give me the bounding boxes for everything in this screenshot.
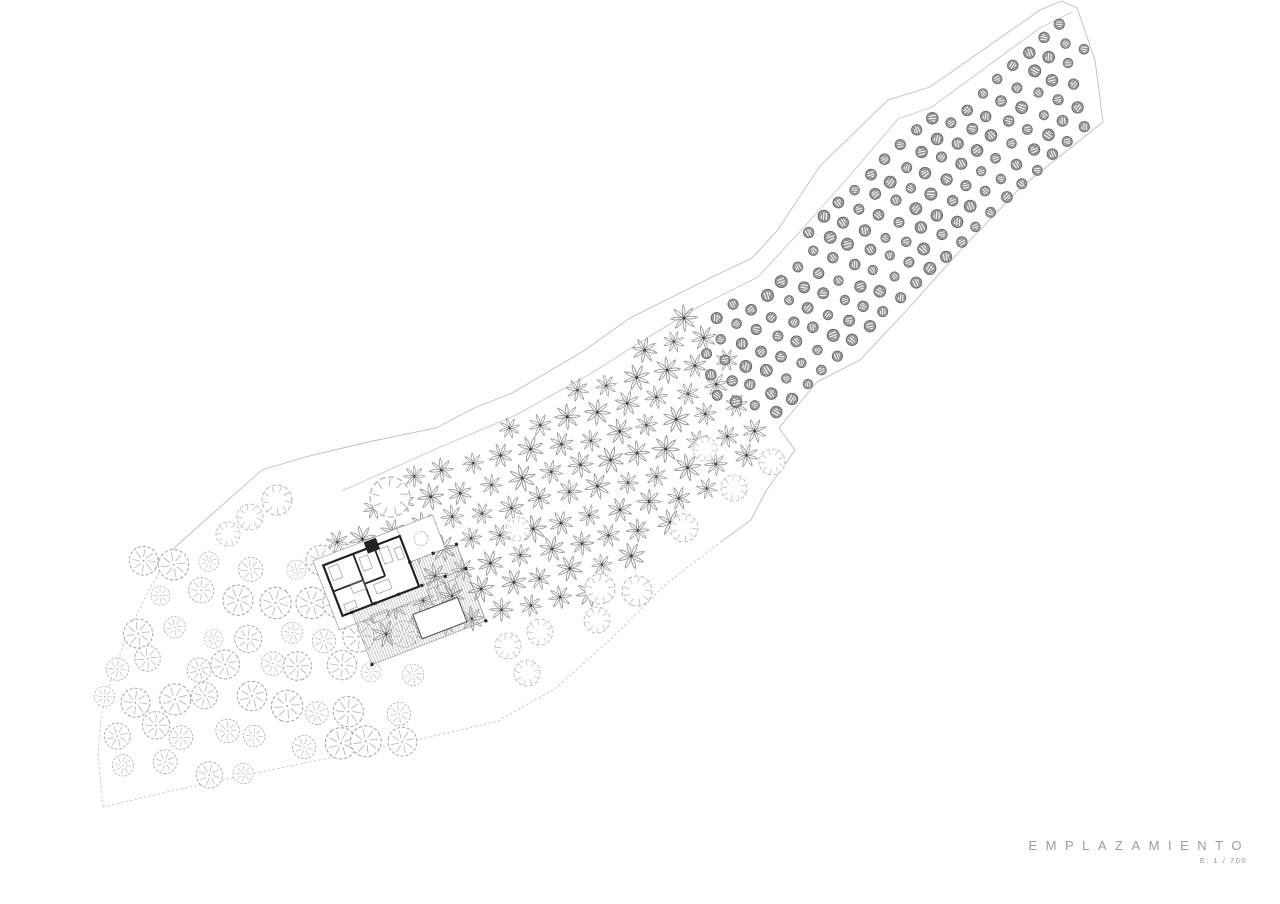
medium-tree-icon [754, 444, 790, 480]
star-tree-icon [460, 450, 486, 476]
dark-tree-icon [1027, 143, 1040, 156]
dark-tree-icon [843, 315, 855, 327]
dark-tree-icon [807, 244, 820, 257]
star-tree-icon [645, 466, 667, 488]
dark-tree-icon [856, 299, 871, 314]
building-floor-plan [313, 510, 488, 672]
dark-tree-icon [900, 161, 914, 175]
dark-tree-icon [1053, 18, 1066, 31]
star-tree-icon [535, 455, 568, 488]
star-tree-icon [477, 470, 507, 500]
dark-tree-icon [743, 378, 756, 391]
dark-tree-icon [807, 322, 818, 333]
dark-tree-icon [911, 124, 923, 136]
dark-tree-icon [978, 184, 992, 198]
star-tree-icon [538, 535, 566, 563]
dark-tree-icon [853, 203, 864, 214]
dark-tree-icon [1070, 99, 1086, 115]
dark-tree-icon [1046, 74, 1059, 87]
grove-tree-icon [153, 749, 178, 774]
dark-tree-icon [995, 173, 1008, 186]
grove-tree-icon [383, 698, 414, 729]
dark-tree-icon [1078, 43, 1091, 56]
dark-tree-icon [826, 250, 840, 264]
dark-tree-icon [821, 308, 835, 322]
star-tree-icon [524, 482, 555, 513]
grove-tree-icon [239, 721, 268, 750]
dark-tree-icon [929, 131, 945, 147]
dark-tree-icon [872, 283, 889, 300]
dark-tree-icon [812, 266, 826, 280]
grove-tree-icon [292, 735, 316, 759]
dense-orchard [701, 18, 1090, 421]
dark-tree-icon [710, 311, 724, 325]
dark-tree-icon [1057, 115, 1069, 127]
dark-tree-icon [924, 187, 938, 201]
dark-tree-icon [1014, 99, 1030, 115]
dark-tree-icon [727, 375, 738, 386]
star-tree-icon [505, 461, 539, 495]
grove-tree-icon [186, 677, 223, 714]
star-tree-icon [603, 493, 637, 527]
dark-tree-icon [1032, 86, 1045, 99]
grove-tree-icon [267, 686, 307, 726]
dark-tree-icon [710, 388, 724, 402]
dark-tree-icon [854, 280, 867, 293]
star-tree-icon [577, 426, 606, 455]
dark-tree-icon [890, 194, 903, 207]
dark-tree-icon [1042, 50, 1056, 64]
star-tree-icon [592, 372, 620, 400]
medium-tree-icon [664, 508, 703, 547]
grove-tree-icon [280, 621, 304, 645]
star-tree-icon [566, 379, 589, 402]
title-block: EMPLAZAMIENTO E: 1 / 700 [1028, 838, 1250, 865]
boundary-top [173, 1, 1077, 549]
dark-tree-icon [904, 181, 918, 195]
grove-tree-icon [124, 541, 163, 580]
star-tree-icon [545, 582, 575, 612]
dark-tree-icon [849, 184, 861, 196]
dark-tree-icon [841, 238, 854, 251]
medium-tree-icon [215, 521, 241, 547]
dark-tree-icon [826, 328, 841, 343]
grove-tree-icon [232, 623, 264, 655]
dark-tree-icon [789, 334, 804, 349]
grove-tree-icon [400, 662, 426, 688]
dark-tree-icon [780, 372, 793, 385]
star-tree-icon [659, 327, 688, 356]
dark-tree-icon [1010, 81, 1024, 95]
grove-tree-icon [212, 716, 242, 746]
star-tree-icon [414, 480, 448, 514]
medium-tree-icon [509, 655, 544, 690]
grove-tree-icon [324, 648, 359, 683]
dark-tree-icon [864, 320, 876, 332]
dark-tree-icon [727, 298, 740, 311]
dark-tree-icon [768, 404, 784, 420]
grove-tree-icon [254, 581, 298, 625]
dark-tree-icon [871, 207, 886, 222]
star-tree-icon [730, 439, 763, 472]
medium-tree-icon [491, 629, 525, 663]
dark-tree-icon [917, 165, 932, 180]
dark-tree-icon [791, 261, 804, 274]
star-tree-icon [712, 422, 742, 452]
dark-tree-icon [976, 166, 987, 177]
star-tree-icon [469, 500, 495, 526]
dark-tree-icon [934, 150, 949, 165]
dark-tree-icon [748, 399, 761, 412]
dark-tree-icon [844, 332, 860, 348]
star-tree-icon [619, 360, 655, 396]
grove-tree-icon [198, 551, 220, 573]
star-tree-icon [658, 401, 695, 438]
grove-tree-icon [191, 756, 228, 793]
dark-tree-icon [915, 241, 932, 258]
medium-tree-icon [262, 485, 292, 515]
dark-tree-icon [720, 355, 730, 365]
dark-tree-icon [991, 73, 1003, 85]
grove-tree-icon [148, 583, 172, 607]
dark-tree-icon [811, 343, 824, 356]
star-tree-icon [647, 430, 685, 468]
grove-tree-icon [200, 626, 226, 652]
dark-tree-icon [979, 110, 992, 123]
grove-tree-icon [102, 654, 133, 685]
dark-tree-icon [882, 174, 899, 191]
dark-tree-icon [894, 217, 904, 227]
dark-tree-icon [817, 287, 830, 300]
dark-tree-icon [940, 251, 952, 263]
dark-tree-icon [916, 146, 928, 158]
medium-tree-icon [580, 569, 620, 609]
dark-tree-icon [839, 294, 850, 305]
dark-tree-icon [744, 303, 759, 318]
grove-tree-icon [305, 702, 328, 725]
star-tree-icon [632, 411, 660, 439]
star-tree-icon [525, 564, 554, 593]
dark-tree-icon [738, 358, 754, 374]
grove-tree-icon [182, 653, 216, 687]
star-tree-icon [663, 482, 696, 515]
dark-tree-icon [965, 122, 979, 136]
dark-tree-icon [866, 264, 879, 277]
dark-tree-icon [1037, 109, 1050, 122]
dark-tree-icon [764, 386, 780, 402]
star-tree-icon [666, 300, 703, 337]
dark-tree-icon [1066, 77, 1081, 92]
drawing-title: EMPLAZAMIENTO [1028, 838, 1250, 853]
dark-tree-icon [783, 294, 796, 307]
dark-tree-icon [950, 215, 964, 229]
dark-tree-icon [930, 208, 944, 222]
dark-tree-icon [831, 195, 846, 210]
dark-tree-icon [817, 209, 831, 223]
dark-tree-icon [1063, 58, 1074, 69]
dark-tree-icon [758, 362, 774, 378]
star-tree-icon [548, 510, 574, 536]
dark-tree-icon [1053, 94, 1064, 105]
dark-tree-icon [864, 243, 878, 257]
dark-tree-icon [1062, 136, 1073, 147]
star-tree-icon [505, 540, 536, 571]
grove-tree-icon [386, 725, 419, 758]
access-road-inner-edge [342, 12, 1072, 491]
star-tree-icon [498, 567, 529, 598]
dark-tree-icon [1015, 177, 1029, 191]
star-tree-icon [556, 555, 584, 583]
dark-tree-icon [955, 235, 969, 249]
star-tree-icon [447, 480, 474, 507]
dark-tree-icon [879, 231, 892, 244]
dark-tree-icon [976, 87, 990, 101]
dark-tree-icon [771, 329, 784, 342]
dark-tree-icon [836, 215, 851, 230]
dark-tree-icon [868, 186, 883, 201]
dark-tree-icon [1040, 127, 1057, 144]
dark-tree-icon [764, 310, 778, 324]
dark-tree-icon [761, 288, 775, 302]
star-tree-icon [488, 596, 515, 623]
dark-tree-icon [939, 171, 955, 187]
grove-tree-icon [231, 675, 272, 716]
star-tree-icon [578, 504, 601, 527]
dark-tree-icon [921, 260, 938, 277]
dark-tree-icon [823, 230, 837, 244]
dark-tree-icon [888, 270, 901, 283]
star-tree-icon [613, 468, 643, 498]
dark-tree-icon [969, 143, 985, 159]
dark-tree-icon [796, 358, 806, 368]
grove-tree-icon [111, 753, 136, 778]
dark-tree-icon [895, 139, 906, 150]
dark-tree-icon [753, 344, 768, 359]
medium-tree-icon [618, 572, 656, 610]
grove-tree-icon [155, 546, 192, 583]
dark-tree-icon [705, 369, 716, 380]
grove-tree-icon [279, 648, 316, 685]
star-tree-icon [641, 382, 671, 412]
dark-tree-icon [797, 280, 811, 294]
dark-tree-icon [1005, 58, 1020, 73]
dark-tree-icon [952, 138, 964, 150]
dark-tree-icon [960, 103, 975, 118]
star-tree-icon [516, 434, 546, 464]
grove-tree-icon [236, 554, 266, 584]
star-tree-icon [437, 501, 468, 532]
dark-tree-icon [848, 258, 861, 271]
dark-tree-icon [831, 350, 843, 362]
dark-tree-icon [878, 152, 892, 166]
medium-tree-icon [523, 615, 556, 648]
dark-tree-icon [865, 168, 878, 181]
dark-tree-icon [1006, 138, 1016, 148]
grove-tree-icon [231, 761, 256, 786]
dark-tree-icon [926, 112, 939, 125]
star-tree-icon [603, 415, 636, 448]
star-tree-icon [457, 524, 485, 552]
star-tree-icon [580, 469, 614, 503]
dark-tree-icon [999, 189, 1014, 204]
dark-tree-icon [832, 274, 845, 287]
dark-tree-icon [954, 157, 968, 171]
dark-tree-icon [914, 220, 928, 234]
dark-tree-icon [944, 116, 957, 129]
dark-tree-icon [884, 250, 895, 261]
dark-tree-icon [907, 200, 924, 217]
star-tree-icon [738, 415, 771, 448]
dark-tree-icon [903, 256, 915, 268]
star-tree-icon [525, 410, 556, 441]
grove-tree-icon [158, 683, 192, 717]
dark-tree-icon [983, 127, 999, 143]
star-tree-icon [486, 441, 515, 470]
grove-tree-icon [205, 644, 245, 684]
dark-tree-icon [802, 226, 815, 239]
dark-tree-icon [1009, 157, 1023, 171]
dark-tree-icon [1031, 165, 1043, 177]
dark-tree-icon [1023, 46, 1036, 59]
site-plan-canvas [0, 0, 1280, 904]
dark-tree-icon [815, 364, 827, 376]
grove-tree-icon [160, 613, 189, 642]
dark-tree-icon [961, 180, 972, 191]
star-tree-icon [675, 381, 700, 406]
star-tree-icon [622, 515, 654, 547]
star-tree-icon [614, 539, 648, 573]
dark-tree-icon [859, 224, 871, 236]
dark-tree-icon [995, 95, 1007, 107]
dark-tree-icon [1022, 124, 1032, 134]
dark-tree-icon [909, 276, 923, 290]
dark-tree-icon [877, 306, 889, 318]
dark-tree-icon [990, 152, 1002, 164]
dark-tree-icon [1078, 121, 1090, 133]
dark-tree-icon [937, 229, 948, 240]
dark-tree-icon [1002, 114, 1016, 128]
star-tree-icon [566, 527, 598, 559]
medium-tree-icon [580, 603, 614, 637]
grove-tree-icon [91, 683, 119, 711]
site-plan-page: EMPLAZAMIENTO E: 1 / 700 [0, 0, 1280, 904]
star-tree-icon [614, 390, 640, 416]
dark-tree-icon [774, 275, 788, 289]
dark-tree-icon [1026, 62, 1043, 79]
drawing-scale: E: 1 / 700 [1028, 856, 1250, 865]
star-tree-icon [595, 522, 623, 550]
star-tree-icon [565, 449, 596, 480]
star-tree-icon [696, 478, 718, 500]
star-tree-icon [552, 401, 583, 432]
dark-tree-icon [701, 348, 712, 359]
star-tree-icon [620, 436, 654, 470]
dark-tree-icon [774, 350, 787, 363]
dark-tree-icon [901, 237, 911, 247]
star-tree-icon [515, 590, 546, 621]
medium-tree-icon [718, 472, 750, 504]
dark-tree-icon [735, 337, 748, 350]
dark-tree-icon [787, 315, 802, 330]
star-tree-icon [691, 399, 721, 429]
grove-tree-icon [217, 579, 260, 622]
dark-tree-icon [984, 205, 998, 219]
dark-tree-icon [800, 300, 816, 316]
dark-tree-icon [1037, 31, 1051, 45]
star-tree-icon [496, 414, 524, 442]
dark-tree-icon [730, 317, 744, 331]
dark-tree-icon [749, 323, 762, 336]
dark-tree-icon [894, 291, 907, 304]
dark-tree-icon [1059, 37, 1072, 50]
dark-tree-icon [946, 194, 958, 206]
star-tree-icon [635, 488, 663, 516]
star-tree-icon [547, 429, 577, 459]
star-tree-icon [651, 354, 684, 387]
dark-tree-icon [963, 199, 977, 213]
grove-tree-icon [184, 573, 218, 607]
grove-tree-icon [102, 721, 132, 751]
star-tree-icon [425, 454, 458, 487]
dark-tree-icon [730, 395, 742, 407]
